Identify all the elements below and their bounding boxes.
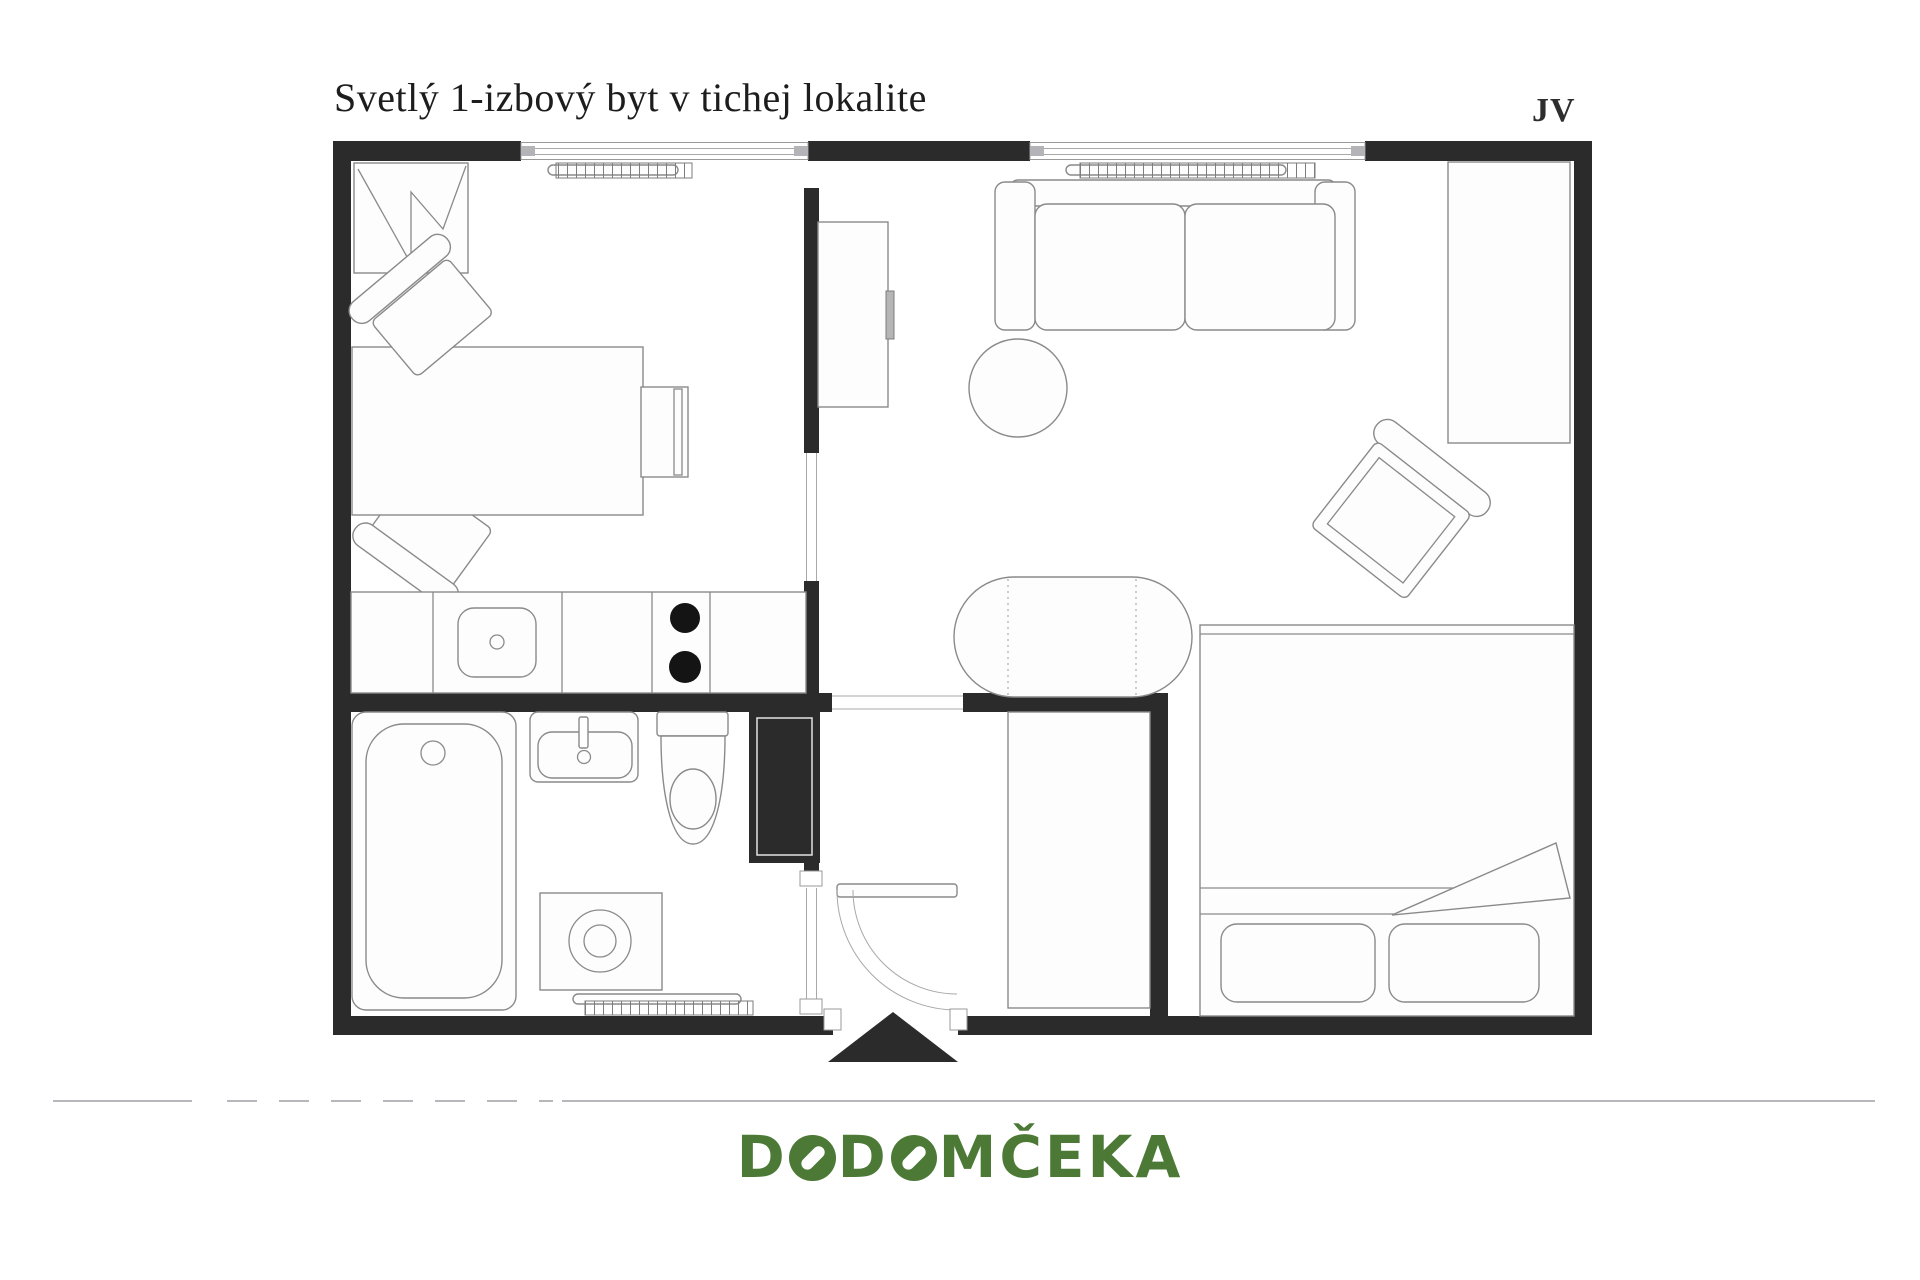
floor-plan-page: Svetlý 1-izbový byt v tichej lokalite JV xyxy=(0,0,1920,1280)
coffee-table xyxy=(969,339,1067,437)
pillow xyxy=(1221,924,1375,1002)
kitchen-sink xyxy=(458,608,536,677)
pillow xyxy=(1389,924,1539,1002)
hall-wardrobe xyxy=(1008,712,1150,1008)
bathtub xyxy=(352,712,516,1010)
kitchen-study-room xyxy=(344,163,806,693)
sofa xyxy=(995,180,1355,330)
tv xyxy=(886,291,894,339)
desk-table xyxy=(352,347,643,515)
living-room xyxy=(818,162,1570,697)
desk-side-unit xyxy=(641,387,688,477)
window-kitchen xyxy=(521,143,808,160)
washbasin xyxy=(530,712,638,782)
logo-o-icon xyxy=(891,1135,937,1181)
logo-o-icon xyxy=(789,1135,835,1181)
tap xyxy=(579,717,588,748)
entrance-door xyxy=(837,884,957,1010)
radiator-living xyxy=(1066,163,1315,178)
window-living xyxy=(1030,143,1365,160)
dodomceka-logo: DDMČEKA xyxy=(737,1128,1184,1186)
floor-plan-drawing xyxy=(0,0,1920,1280)
installation-shaft xyxy=(749,710,820,863)
dining-table-oval xyxy=(954,577,1192,697)
stove-burner xyxy=(670,603,700,633)
washing-machine xyxy=(540,893,662,990)
tv-cabinet xyxy=(818,222,894,407)
radiator-kitchen xyxy=(548,163,692,178)
stove-burner xyxy=(669,651,701,683)
radiator-bathroom xyxy=(573,994,753,1015)
bed xyxy=(1200,625,1574,1016)
wall-openings xyxy=(807,453,964,999)
kitchen-counter xyxy=(351,592,806,693)
bathroom xyxy=(352,712,753,1015)
entrance-marker xyxy=(828,1012,958,1062)
footer: DDMČEKA xyxy=(0,1128,1920,1186)
toilet xyxy=(657,712,728,844)
shelf-wardrobe-topright xyxy=(1448,162,1570,443)
hallway xyxy=(800,712,1150,1062)
